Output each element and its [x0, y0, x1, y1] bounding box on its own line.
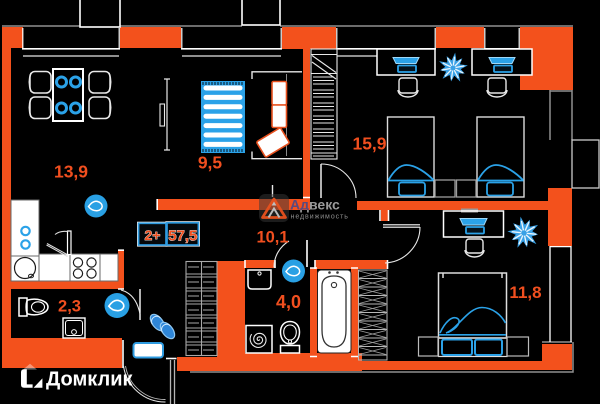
svg-text:10,1: 10,1 — [256, 229, 288, 247]
svg-text:13,9: 13,9 — [54, 162, 88, 182]
svg-text:2,3: 2,3 — [58, 298, 81, 316]
svg-text:Домклик: Домклик — [46, 369, 133, 391]
svg-text:9,5: 9,5 — [198, 153, 223, 173]
svg-text:Адвекс: Адвекс — [290, 197, 340, 213]
svg-text:57,5: 57,5 — [168, 228, 197, 245]
svg-text:2+: 2+ — [145, 227, 161, 243]
svg-text:15,9: 15,9 — [352, 134, 386, 154]
svg-text:4,0: 4,0 — [276, 292, 301, 312]
svg-text:11,8: 11,8 — [509, 283, 541, 302]
svg-text:недвижимость: недвижимость — [291, 214, 349, 221]
